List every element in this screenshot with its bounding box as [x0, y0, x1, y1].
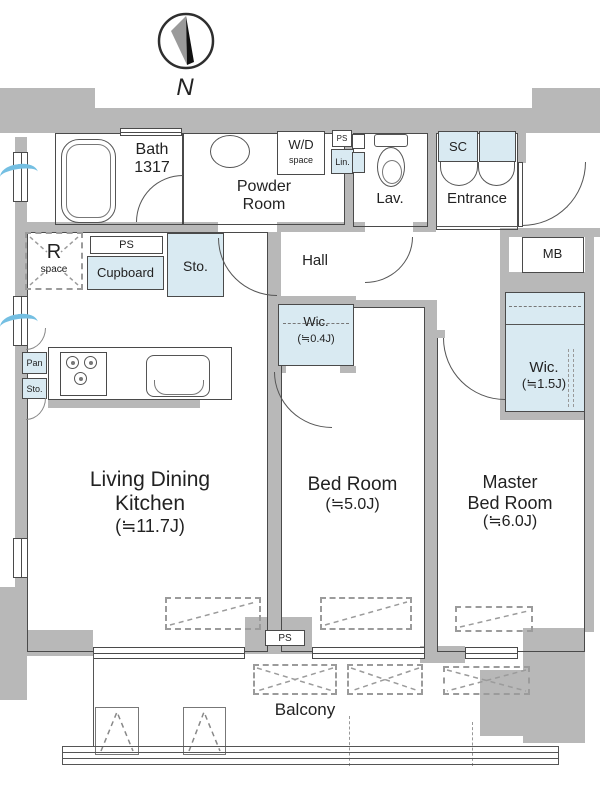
toilet-tank-icon [374, 134, 408, 147]
wall-bed-master [425, 300, 437, 652]
planter-box [183, 707, 226, 755]
ac-unit-dashed-box [253, 664, 337, 695]
floorplan: N Bath1317 Po [0, 0, 600, 800]
ac-unit-dashed-box [443, 666, 530, 695]
lav-storage-box [352, 152, 365, 173]
railing-line [62, 758, 559, 759]
entrance-label: Entrance [436, 190, 518, 207]
hall-label: Hall [285, 252, 345, 269]
entrance-door-leaf [518, 162, 523, 227]
wall-entrance-right [518, 133, 526, 163]
linen-box: Lin. [331, 149, 354, 174]
lav-shaft-box [352, 134, 365, 149]
wall-wic-small-top [276, 296, 356, 304]
window-bath-top [120, 128, 182, 136]
furniture-dashed-box [165, 597, 261, 630]
ps-bottom-box: PS [265, 630, 305, 646]
ps-top-box: PS [332, 130, 352, 147]
burner-icon [66, 356, 79, 369]
window-master-balcony [465, 647, 518, 659]
railing-line [62, 752, 559, 753]
refrigerator-space-box: R space [25, 232, 83, 290]
furniture-dashed-box [455, 606, 533, 632]
lav-label: Lav. [355, 190, 425, 207]
planter-box [95, 707, 139, 755]
wall-lav-entrance [428, 133, 436, 230]
wic-large-box: Wic. (≒1.5J) [505, 292, 585, 412]
storage-hall-box: Sto. [167, 233, 224, 297]
ac-unit-dashed-box [347, 664, 423, 695]
shoe-closet-box: SC [438, 131, 478, 162]
window-bedroom-balcony [312, 647, 425, 659]
railing-end [62, 746, 63, 765]
cupboard-box: Cupboard [87, 256, 164, 290]
entrance-step-line [436, 226, 518, 227]
wall-master-door-stub-a [437, 330, 445, 338]
burner-icon [74, 372, 87, 385]
balcony-partition-dash [472, 722, 473, 766]
railing-end [558, 746, 559, 765]
bath-label: Bath1317 [120, 141, 184, 178]
lav-door-arc [365, 237, 413, 283]
wall-bedroom-top [353, 300, 437, 307]
railing-line [62, 746, 559, 747]
balcony-label: Balcony [250, 700, 360, 720]
sink-icon [146, 355, 210, 397]
meter-box: MB [522, 237, 584, 273]
wall-right-outer [585, 232, 594, 632]
wic-small-box: Wic. (≒0.4J) [278, 304, 354, 366]
storage-kitchen-box: Sto. [22, 378, 47, 399]
wall-below-mb [509, 272, 585, 292]
bathtub-icon [61, 139, 116, 223]
compass-north-label: N [160, 74, 210, 102]
master-bedroom-label: Master Bed Room (≒6.0J) [440, 472, 580, 532]
railing-line [62, 764, 559, 765]
basin-icon [210, 135, 250, 168]
room-outline-ldk [27, 232, 268, 652]
pantry-box: Pan [22, 352, 47, 374]
ps-mid-box: PS [90, 236, 163, 254]
wd-space-box: W/D space [277, 131, 325, 175]
toilet-icon [377, 147, 405, 187]
shoe-closet-box-2 [479, 131, 516, 162]
wall-bottom-left [0, 587, 27, 700]
window-ldk-side [13, 538, 28, 578]
balcony-left-line [93, 652, 94, 747]
burner-icon [84, 356, 97, 369]
furniture-dashed-box [320, 597, 412, 630]
entrance-door-arc [522, 162, 586, 226]
vent-icon [0, 161, 39, 187]
ldk-label: Living Dining Kitchen (≒11.7J) [55, 468, 245, 537]
compass-icon [152, 10, 220, 78]
bedroom-label: Bed Room (≒5.0J) [295, 474, 410, 514]
powder-room-label: PowderRoom [185, 178, 343, 215]
window-ldk-balcony [93, 647, 245, 659]
